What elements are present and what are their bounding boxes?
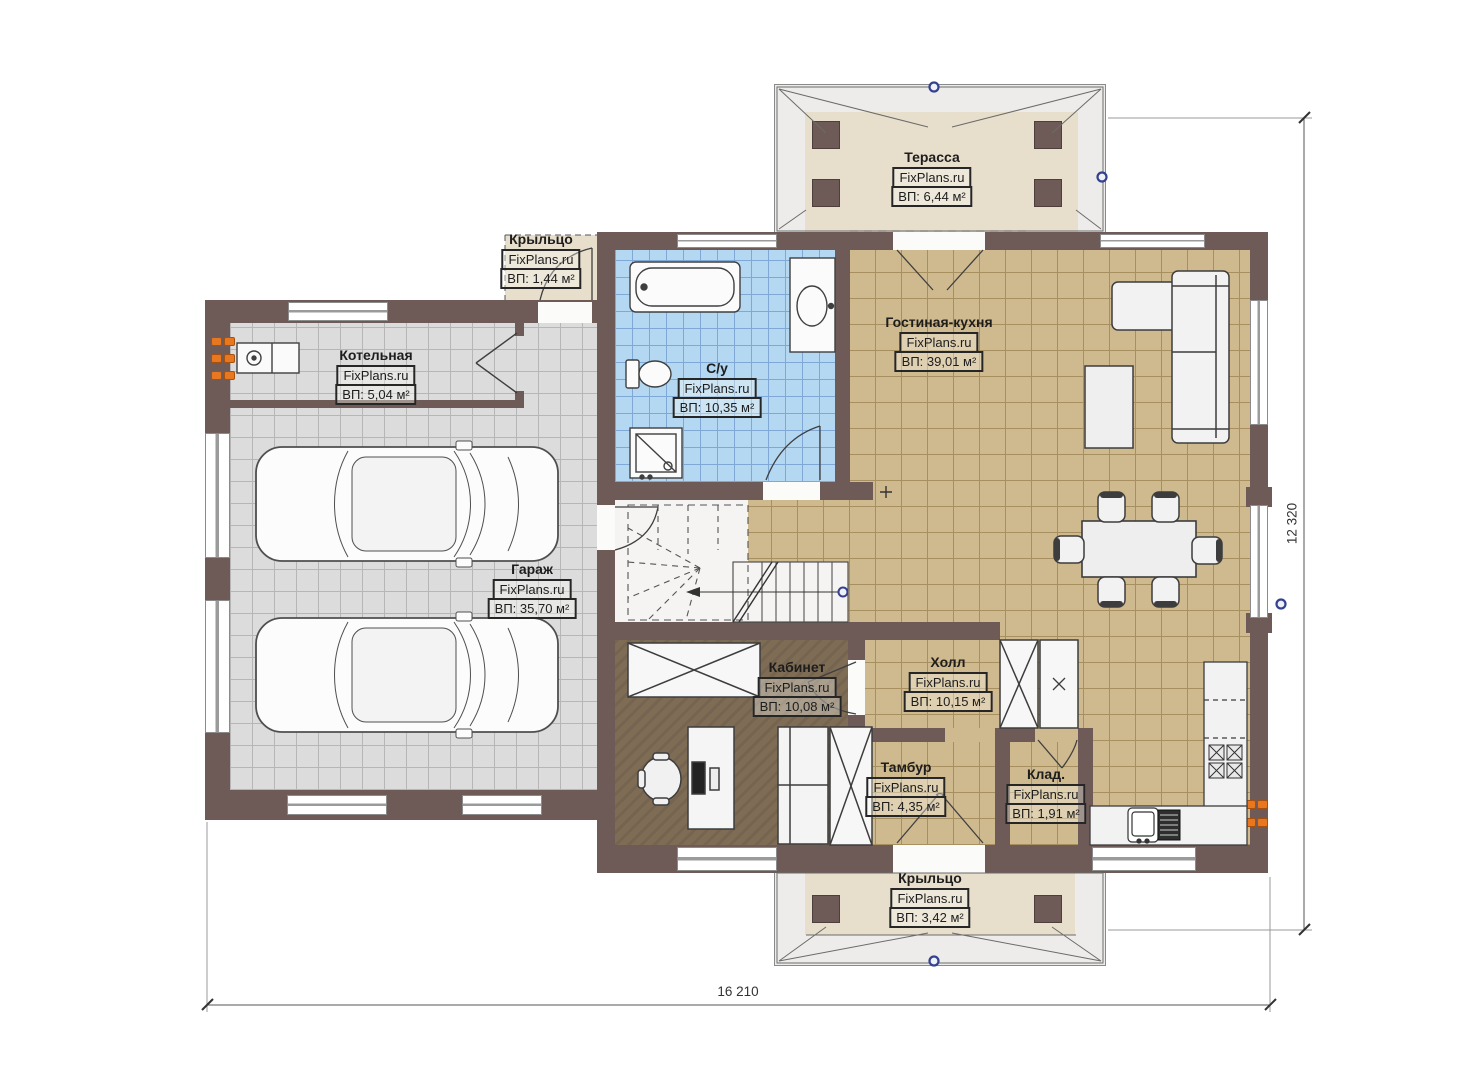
porch-column [812, 895, 840, 923]
room-watermark: FixPlans.ru [908, 672, 987, 693]
storage-door-opening [1035, 728, 1078, 742]
utility-indicator-icon [224, 371, 235, 380]
office-door-opening [848, 660, 865, 715]
window-dining-right [1250, 505, 1268, 618]
room-name: Клад. [1027, 767, 1065, 782]
label-office: Кабинет FixPlans.ru ВП: 10,08 м² [753, 660, 842, 717]
wall-hall-vestibule [865, 728, 945, 742]
wall-boiler-stub-top [515, 323, 524, 336]
stair-flight-floor [748, 562, 848, 622]
room-watermark: FixPlans.ru [890, 888, 969, 909]
room-area: ВП: 35,70 м² [488, 598, 577, 619]
label-living-kitchen: Гостиная-кухня FixPlans.ru ВП: 39,01 м² [885, 315, 992, 372]
room-watermark: FixPlans.ru [501, 249, 580, 270]
room-area: ВП: 3,42 м² [889, 907, 970, 928]
utility-indicator-icon [211, 337, 222, 346]
room-watermark: FixPlans.ru [866, 777, 945, 798]
room-area: ВП: 5,04 м² [335, 384, 416, 405]
terrace-column [812, 179, 840, 207]
room-name: Терасса [904, 150, 960, 165]
room-name: Гараж [511, 562, 553, 577]
room-name: Гостиная-кухня [885, 315, 992, 330]
room-area: ВП: 1,44 м² [500, 268, 581, 289]
porch-top-door-opening [538, 302, 592, 323]
room-area: ВП: 6,44 м² [891, 186, 972, 207]
wall-annex-bottom [205, 790, 615, 820]
label-storage: Клад. FixPlans.ru ВП: 1,91 м² [1005, 767, 1086, 824]
label-garage: Гараж FixPlans.ru ВП: 35,70 м² [488, 562, 577, 619]
utility-indicator-icon [211, 371, 222, 380]
window-bathroom-top [677, 234, 777, 248]
room-name: Крыльцо [898, 871, 962, 886]
terrace-column [812, 121, 840, 149]
utility-indicator-icon [211, 354, 222, 363]
room-watermark: FixPlans.ru [492, 579, 571, 600]
room-name: Котельная [339, 348, 412, 363]
wall-storage-top [1010, 728, 1035, 742]
terrace-column [1034, 121, 1062, 149]
room-watermark: FixPlans.ru [1006, 784, 1085, 805]
room-area: ВП: 10,08 м² [753, 696, 842, 717]
garage-gate-2 [205, 600, 230, 733]
room-area: ВП: 10,35 м² [673, 397, 762, 418]
wall-below-stairs [597, 622, 1000, 640]
utility-indicator-icon [224, 354, 235, 363]
label-terrace: Терасса FixPlans.ru ВП: 6,44 м² [891, 150, 972, 207]
window-garage-bottom-1 [287, 795, 387, 815]
window-boiler-top [288, 302, 388, 321]
room-area: ВП: 1,91 м² [1005, 803, 1086, 824]
utility-indicator-icon [1257, 818, 1268, 827]
wall-boiler-stub-bottom [515, 391, 524, 408]
room-area: ВП: 39,01 м² [895, 351, 984, 372]
dimension-width: 16 210 [688, 984, 788, 999]
porch-column [1034, 895, 1062, 923]
dimension-height: 12 320 [1285, 479, 1300, 569]
bathroom-door-opening [763, 482, 820, 500]
room-name: Холл [930, 655, 965, 670]
terrace-door-opening [893, 232, 985, 250]
window-kitchen-bottom [1092, 847, 1196, 871]
label-boiler: Котельная FixPlans.ru ВП: 5,04 м² [335, 348, 416, 405]
wall-pier-top [1246, 487, 1272, 507]
terrace-column [1034, 179, 1062, 207]
room-watermark: FixPlans.ru [899, 332, 978, 353]
wall-below-bathroom-a [597, 482, 763, 500]
hall-vestibule-opening [945, 728, 995, 742]
room-name: Крыльцо [509, 232, 573, 247]
window-living-top [1100, 234, 1205, 248]
front-door-opening [893, 845, 985, 873]
wall-left [597, 232, 615, 873]
room-area: ВП: 4,35 м² [865, 796, 946, 817]
label-bathroom: С/у FixPlans.ru ВП: 10,35 м² [673, 361, 762, 418]
window-garage-bottom-2 [462, 795, 542, 815]
utility-indicator-icon [224, 337, 235, 346]
utility-indicator-icon [1245, 800, 1256, 809]
room-name: С/у [706, 361, 728, 376]
utility-indicator-icon [1245, 818, 1256, 827]
wall-below-bathroom-b [820, 482, 873, 500]
room-name: Кабинет [769, 660, 826, 675]
label-hall: Холл FixPlans.ru ВП: 10,15 м² [904, 655, 993, 712]
room-name: Тамбур [881, 760, 932, 775]
floor-plan: Терасса FixPlans.ru ВП: 6,44 м² Крыльцо … [0, 0, 1473, 1080]
label-porch-bottom: Крыльцо FixPlans.ru ВП: 3,42 м² [889, 871, 970, 928]
window-sofa-right [1250, 300, 1268, 425]
label-vestibule: Тамбур FixPlans.ru ВП: 4,35 м² [865, 760, 946, 817]
garage-gate-1 [205, 433, 230, 558]
room-watermark: FixPlans.ru [677, 378, 756, 399]
room-watermark: FixPlans.ru [892, 167, 971, 188]
wall-bathroom-living [835, 232, 850, 500]
room-watermark: FixPlans.ru [757, 677, 836, 698]
stair-winder-floor [615, 500, 748, 622]
garage-house-door-opening [597, 505, 615, 550]
room-area: ВП: 10,15 м² [904, 691, 993, 712]
room-watermark: FixPlans.ru [336, 365, 415, 386]
utility-indicator-icon [1257, 800, 1268, 809]
label-porch-top: Крыльцо FixPlans.ru ВП: 1,44 м² [500, 232, 581, 289]
window-office-bottom [677, 847, 777, 871]
